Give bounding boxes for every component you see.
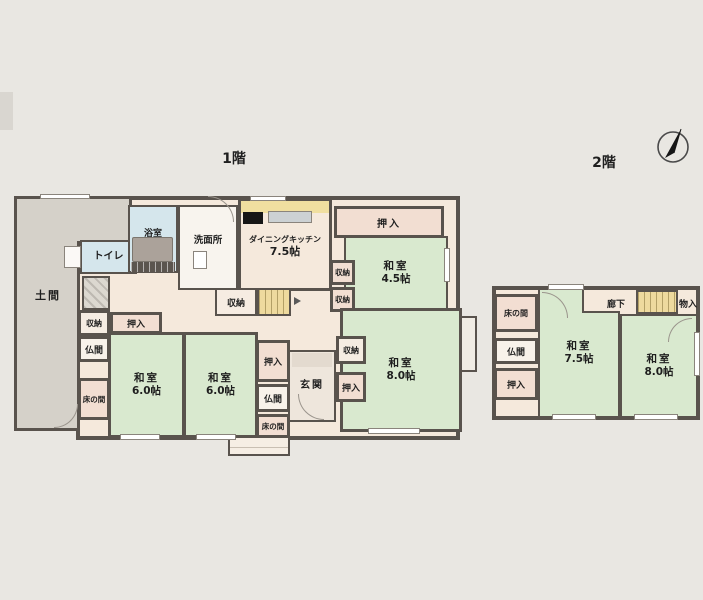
genkan-label: 玄関 [300, 380, 324, 393]
staircase-floor2 [636, 290, 678, 314]
dining-kitchen-size: 7.5帖 [270, 245, 301, 259]
washitsu-size: 6.0帖 [132, 385, 161, 398]
window [40, 194, 90, 199]
window [548, 284, 584, 290]
washitsu-size: 8.0帖 [386, 370, 415, 383]
floor1-title: 1階 [208, 148, 260, 168]
hallway-label: 廊下 [598, 297, 634, 310]
oshiire-label: 押入 [507, 378, 525, 391]
genkan-step [292, 353, 332, 367]
tokonoma-label: 床の間 [262, 421, 285, 432]
washitsu-label: 和室 [134, 372, 159, 385]
toilet-label: トイレ [94, 251, 124, 264]
oshiire-label: 押入 [342, 381, 360, 394]
bay-window-f1 [460, 316, 477, 372]
washitsu-label: 和室 [647, 353, 672, 366]
oshiire-label: 押入 [264, 355, 282, 368]
oshiire-mid-closet: 押入 [256, 340, 290, 382]
window [368, 428, 420, 434]
tokonoma-label: 床の間 [504, 308, 528, 319]
butsuma-label: 仏間 [264, 392, 282, 405]
shuno-label: 収納 [227, 296, 245, 309]
washitsu-size: 6.0帖 [206, 385, 235, 398]
washitsu-4-5-room: 和室 4.5帖 [344, 236, 448, 310]
window [694, 332, 700, 376]
tokonoma-f2-cell: 床の間 [494, 294, 538, 332]
storage-monoire-label: 物入 [676, 297, 700, 310]
washitsu-label: 和室 [384, 260, 409, 273]
tokonoma-label: 床の間 [83, 394, 106, 405]
washitsu-label: 和室 [208, 372, 233, 385]
doma-area-upper [14, 196, 132, 244]
doma-area-lower [14, 241, 80, 431]
shuno-label: 収納 [86, 318, 102, 329]
butsuma-label: 仏間 [85, 343, 103, 356]
washitsu-6-0-room-left: 和室 6.0帖 [108, 332, 185, 438]
shuno-under-stairs: 収納 [215, 288, 257, 316]
washitsu-label: 和室 [567, 340, 592, 353]
compass-north-icon [650, 122, 698, 170]
window [120, 434, 160, 440]
window [552, 414, 596, 420]
staircase-floor1 [257, 288, 291, 316]
tokonoma-mid-cell: 床の間 [256, 414, 290, 438]
step-storage-box [82, 276, 110, 310]
washer-pan [131, 262, 175, 272]
window [634, 414, 678, 420]
washitsu-size: 7.5帖 [564, 353, 593, 366]
washitsu-size: 8.0帖 [644, 366, 673, 379]
oshiire-label: 押入 [127, 317, 145, 330]
shuno-label: 収納 [335, 267, 350, 278]
oshiire-top-closet: 押入 [334, 206, 444, 238]
window [196, 434, 236, 440]
kitchen-stove [243, 212, 263, 224]
bottom-extension [228, 436, 290, 456]
butsuma-mid-cell: 仏間 [256, 384, 290, 412]
butsuma-f2-cell: 仏間 [494, 338, 538, 364]
floor-plan-canvas: 1階 2階 土間 トイレ 浴室 洗面所 ダイニングキッチン 7.5帖 押入 [0, 0, 703, 600]
oshiire-60-closet: 押入 [110, 312, 162, 334]
vanity-fixture [193, 251, 207, 269]
butsuma-left-cell: 仏間 [78, 336, 110, 362]
window [250, 196, 286, 201]
kitchen-sink [268, 211, 312, 223]
shuno-closet-a: 収納 [330, 260, 355, 285]
washitsu-8-0-room-f1: 和室 8.0帖 [340, 308, 462, 432]
oshiire-label: 押入 [377, 215, 401, 230]
toilet-fixture [64, 246, 81, 268]
shuno-label: 収納 [335, 294, 350, 305]
washitsu-size: 4.5帖 [381, 273, 410, 286]
shuno-label: 収納 [343, 345, 359, 356]
dining-kitchen-label: ダイニングキッチン [249, 235, 321, 245]
shuno-genkan-closet: 収納 [336, 336, 366, 364]
bathtub [132, 237, 173, 262]
stairs-up-arrow-icon [294, 297, 301, 305]
window [444, 248, 450, 282]
washroom-label: 洗面所 [194, 235, 223, 247]
shuno-left-cell: 収納 [78, 310, 110, 336]
butsuma-label: 仏間 [507, 345, 525, 358]
floor2-title: 2階 [578, 152, 630, 172]
washitsu-label: 和室 [389, 357, 414, 370]
washitsu-6-0-room-right: 和室 6.0帖 [183, 332, 258, 438]
tokonoma-left-cell: 床の間 [78, 378, 110, 420]
oshiire-f2-cell: 押入 [494, 368, 538, 400]
oshiire-genkan-closet: 押入 [336, 372, 366, 402]
doma-label: 土間 [26, 287, 70, 303]
edge-artifact [0, 92, 13, 130]
